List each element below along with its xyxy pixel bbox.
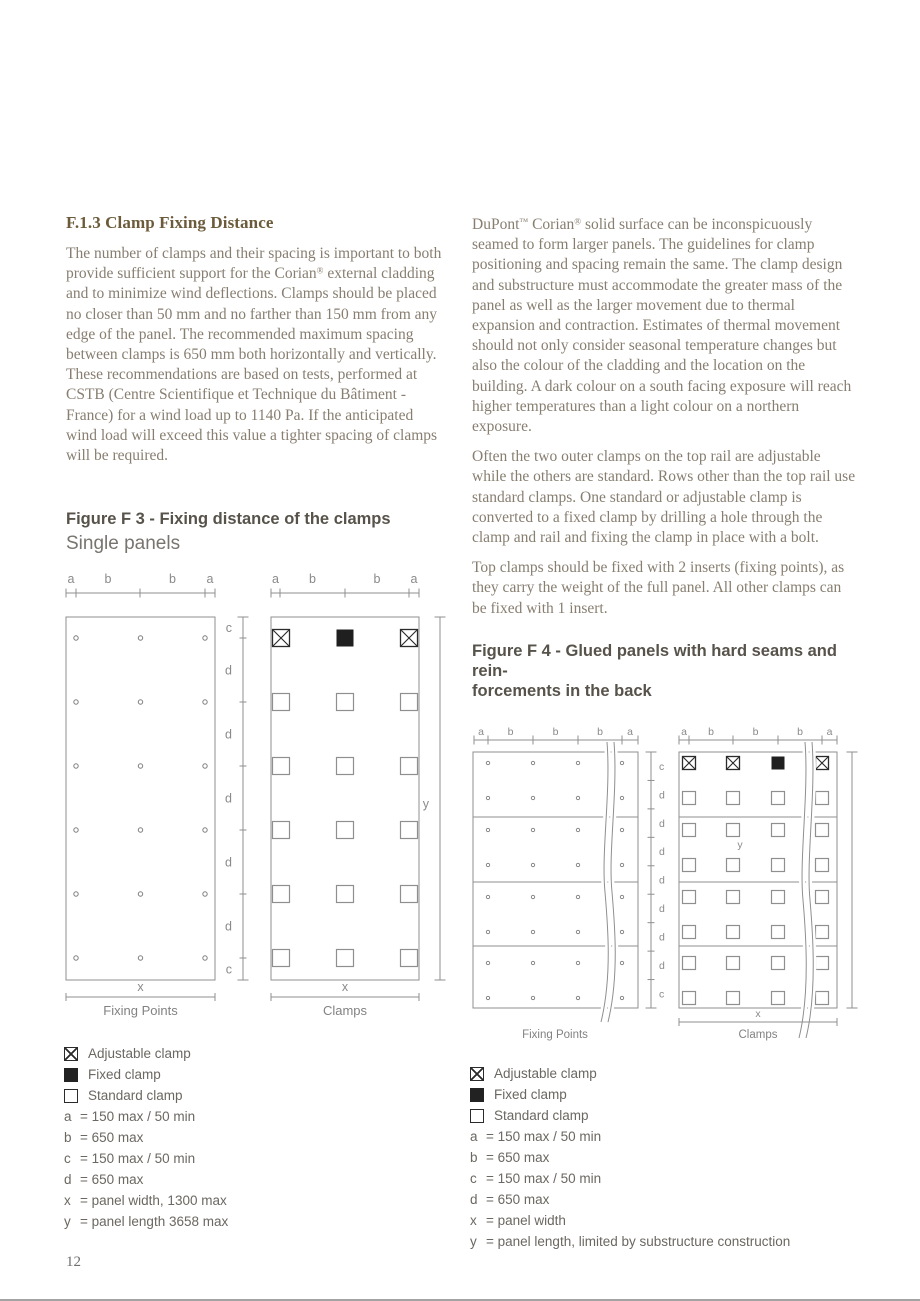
legend-definition: b= 650 max (470, 1147, 790, 1168)
definition-key: y (470, 1234, 486, 1249)
legend-definition: d= 650 max (64, 1169, 228, 1190)
page-number: 12 (66, 1254, 81, 1271)
svg-text:d: d (659, 903, 665, 915)
document-page: F.1.3 Clamp Fixing Distance The number o… (0, 0, 920, 1301)
definition-key: y (64, 1214, 80, 1229)
svg-text:x: x (755, 1008, 761, 1020)
svg-text:y: y (423, 797, 430, 811)
legend-item-label: Standard clamp (88, 1088, 183, 1103)
definition-value: = 150 max / 50 min (80, 1151, 195, 1166)
svg-text:d: d (225, 727, 232, 741)
legend-definition: y= panel length 3658 max (64, 1211, 228, 1232)
svg-text:b: b (753, 726, 759, 738)
svg-text:c: c (226, 962, 232, 976)
svg-text:d: d (659, 789, 665, 801)
legend-item: Fixed clamp (64, 1064, 228, 1085)
definition-value: = panel width (486, 1213, 566, 1228)
legend-definition: d= 650 max (470, 1189, 790, 1210)
svg-text:d: d (225, 663, 232, 677)
legend-definition: c= 150 max / 50 min (470, 1168, 790, 1189)
definition-key: d (64, 1172, 80, 1187)
svg-text:y: y (737, 839, 743, 851)
svg-text:a: a (68, 572, 75, 586)
definition-value: = panel length 3658 max (80, 1214, 228, 1229)
figure-f3-diagram: abbaabbacdddddcyxxFixing PointsClamps (60, 568, 460, 1030)
legend-item: Adjustable clamp (470, 1063, 790, 1084)
definition-key: c (470, 1171, 486, 1186)
definition-value: = panel width, 1300 max (80, 1193, 227, 1208)
body-paragraph: DuPont™ Corian® solid surface can be inc… (472, 215, 856, 437)
svg-text:d: d (659, 818, 665, 830)
legend-item-label: Fixed clamp (494, 1087, 567, 1102)
svg-text:d: d (659, 875, 665, 887)
svg-text:b: b (105, 572, 112, 586)
definition-value: = 150 max / 50 min (486, 1171, 601, 1186)
section-heading: F.1.3 Clamp Fixing Distance (66, 213, 446, 233)
svg-text:Clamps: Clamps (323, 1003, 368, 1018)
figure-f4-diagram: abbbaabbbacdddddddcyxFixing PointsClamps (465, 726, 865, 1046)
svg-text:a: a (411, 572, 418, 586)
definition-key: a (64, 1109, 80, 1124)
legend-definition: b= 650 max (64, 1127, 228, 1148)
definition-key: c (64, 1151, 80, 1166)
figure-f4-legend: Adjustable clampFixed clampStandard clam… (470, 1063, 790, 1252)
legend-item-label: Adjustable clamp (88, 1046, 191, 1061)
svg-text:b: b (169, 572, 176, 586)
svg-text:b: b (508, 726, 514, 738)
figure-f3-title: Figure F 3 - Fixing distance of the clam… (66, 510, 391, 529)
legend-item: Adjustable clamp (64, 1043, 228, 1064)
svg-text:a: a (627, 726, 633, 738)
figure-f4-title-line1: Figure F 4 - Glued panels with hard seam… (472, 641, 856, 681)
svg-text:a: a (207, 572, 214, 586)
figure-f3-subtitle: Single panels (66, 533, 180, 555)
definition-key: d (470, 1192, 486, 1207)
definition-key: a (470, 1129, 486, 1144)
definition-value: = panel length, limited by substructure … (486, 1234, 790, 1249)
legend-item: Standard clamp (64, 1085, 228, 1106)
svg-text:Fixing Points: Fixing Points (522, 1029, 588, 1041)
legend-definition: a= 150 max / 50 min (64, 1106, 228, 1127)
left-column: F.1.3 Clamp Fixing Distance The number o… (66, 213, 446, 476)
svg-text:d: d (659, 932, 665, 944)
adjustable-clamp-symbol (470, 1067, 484, 1081)
svg-text:b: b (553, 726, 559, 738)
svg-text:Fixing Points: Fixing Points (103, 1003, 178, 1018)
legend-item-label: Adjustable clamp (494, 1066, 597, 1081)
svg-text:a: a (681, 726, 687, 738)
svg-text:d: d (659, 960, 665, 972)
svg-text:d: d (659, 846, 665, 858)
svg-text:a: a (478, 726, 484, 738)
svg-text:d: d (225, 855, 232, 869)
svg-text:Clamps: Clamps (739, 1029, 778, 1041)
body-paragraph: Top clamps should be fixed with 2 insert… (472, 558, 856, 619)
definition-key: x (64, 1193, 80, 1208)
definition-key: b (64, 1130, 80, 1145)
legend-definition: a= 150 max / 50 min (470, 1126, 790, 1147)
standard-clamp-symbol (64, 1089, 78, 1103)
svg-text:c: c (226, 621, 232, 635)
svg-text:d: d (225, 791, 232, 805)
svg-text:x: x (342, 980, 349, 994)
svg-text:c: c (659, 761, 664, 773)
figure-f4-title: Figure F 4 - Glued panels with hard seam… (472, 641, 856, 701)
svg-text:b: b (708, 726, 714, 738)
svg-text:b: b (797, 726, 803, 738)
svg-text:b: b (597, 726, 603, 738)
legend-item: Standard clamp (470, 1105, 790, 1126)
definition-value: = 650 max (80, 1172, 143, 1187)
legend-item: Fixed clamp (470, 1084, 790, 1105)
definition-value: = 650 max (486, 1150, 549, 1165)
definition-value: = 150 max / 50 min (80, 1109, 195, 1124)
body-paragraph: Often the two outer clamps on the top ra… (472, 447, 856, 548)
figure-f3-legend: Adjustable clampFixed clampStandard clam… (64, 1043, 228, 1232)
definition-value: = 650 max (80, 1130, 143, 1145)
svg-text:x: x (137, 980, 144, 994)
definition-key: b (470, 1150, 486, 1165)
legend-item-label: Standard clamp (494, 1108, 589, 1123)
fixed-clamp-symbol (470, 1088, 484, 1102)
standard-clamp-symbol (470, 1109, 484, 1123)
svg-text:c: c (659, 988, 664, 1000)
legend-definition: x= panel width, 1300 max (64, 1190, 228, 1211)
definition-key: x (470, 1213, 486, 1228)
figure-f4-title-line2: forcements in the back (472, 681, 856, 701)
body-paragraph: The number of clamps and their spacing i… (66, 244, 446, 466)
legend-item-label: Fixed clamp (88, 1067, 161, 1082)
svg-text:b: b (309, 572, 316, 586)
svg-text:a: a (827, 726, 833, 738)
definition-value: = 650 max (486, 1192, 549, 1207)
svg-text:b: b (374, 572, 381, 586)
legend-definition: y= panel length, limited by substructure… (470, 1231, 790, 1252)
adjustable-clamp-symbol (64, 1047, 78, 1061)
svg-text:d: d (225, 919, 232, 933)
svg-text:a: a (272, 572, 279, 586)
fixed-clamp-symbol (64, 1068, 78, 1082)
definition-value: = 150 max / 50 min (486, 1129, 601, 1144)
legend-definition: x= panel width (470, 1210, 790, 1231)
legend-definition: c= 150 max / 50 min (64, 1148, 228, 1169)
right-column: DuPont™ Corian® solid surface can be inc… (472, 215, 856, 701)
